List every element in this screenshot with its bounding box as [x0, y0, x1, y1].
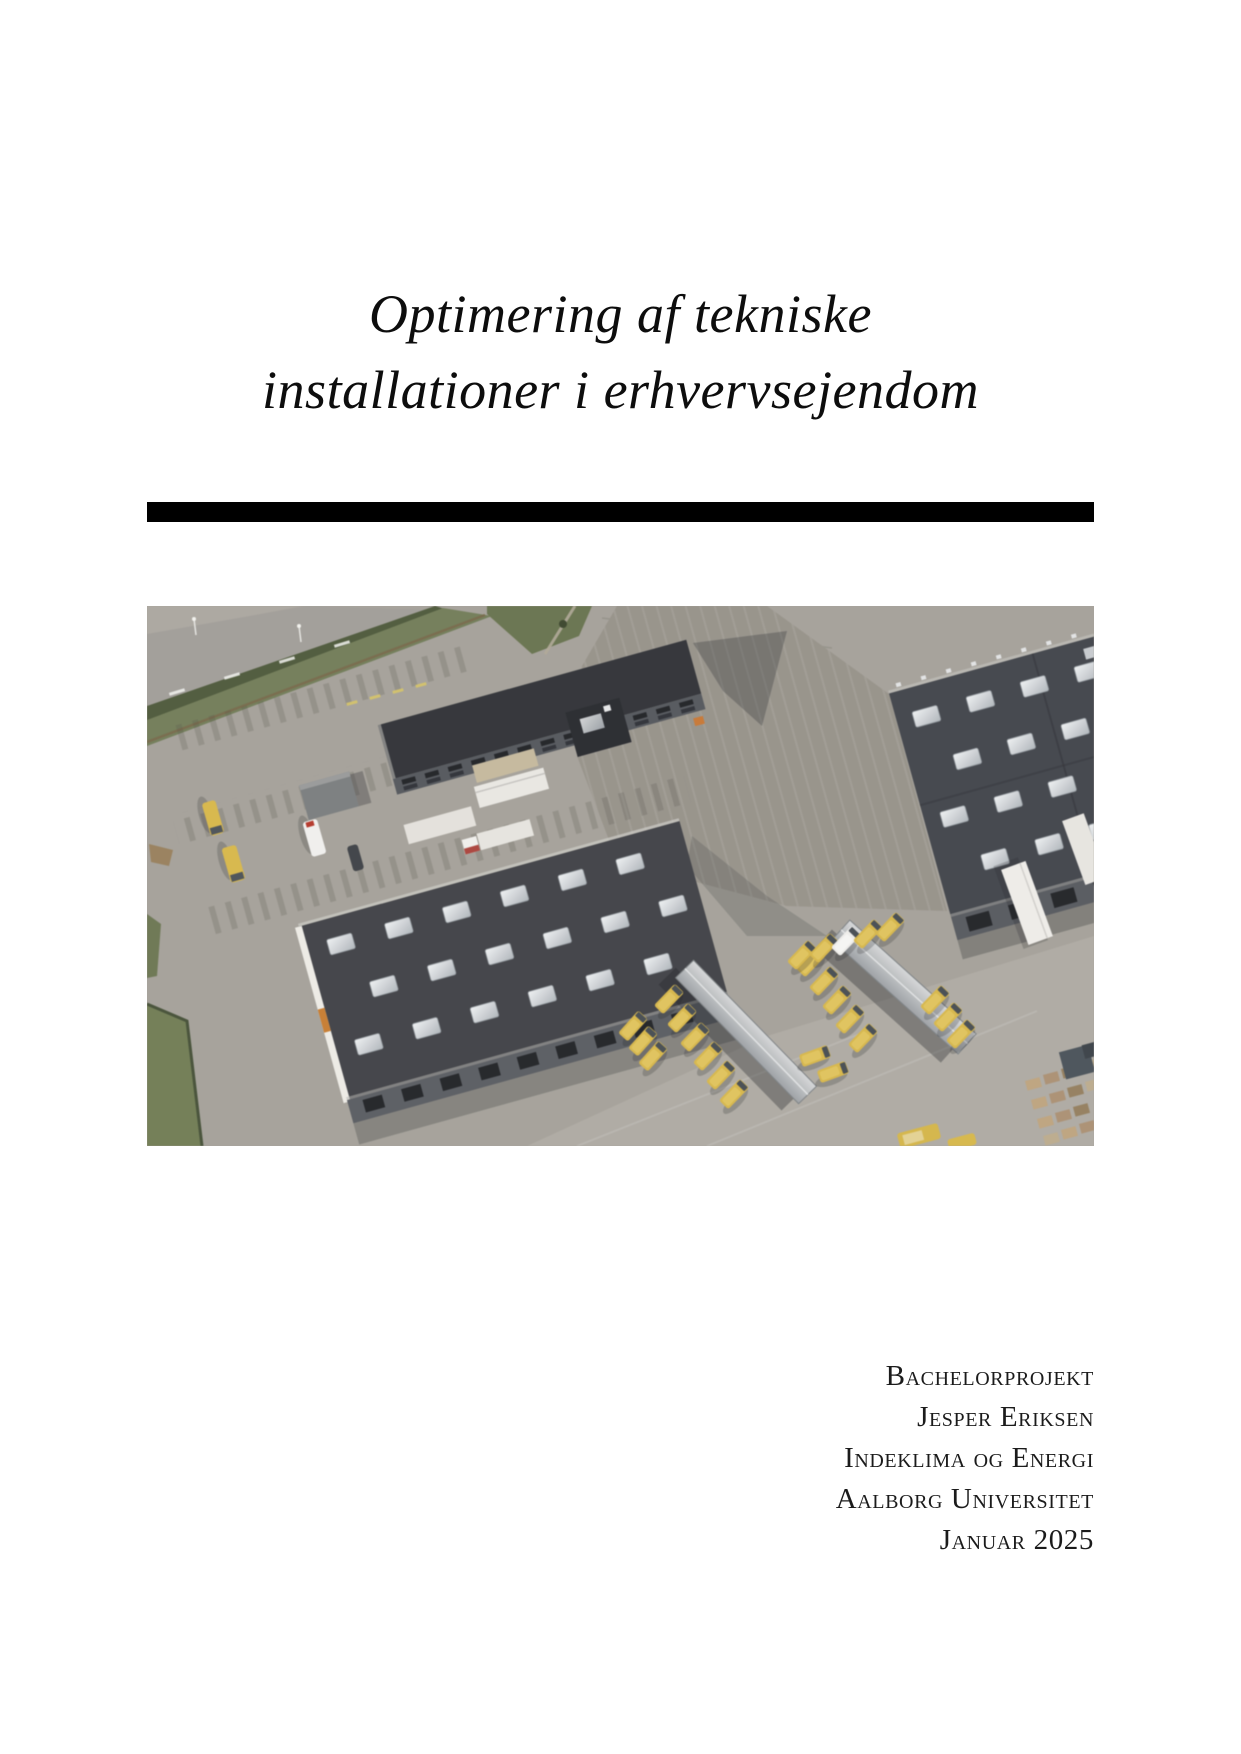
title-line-1: Optimering af tekniske: [369, 284, 872, 344]
cover-page: Optimering af tekniske installationer i …: [0, 0, 1241, 1754]
author-block: Bachelorprojekt Jesper Eriksen Indeklima…: [836, 1356, 1094, 1561]
footer-project-type: Bachelorprojekt: [836, 1356, 1094, 1397]
footer-university: Aalborg Universitet: [836, 1479, 1094, 1520]
cover-photo: [147, 606, 1094, 1146]
title-divider-bar: [147, 502, 1094, 522]
aerial-photo-graphic: [147, 606, 1094, 1146]
footer-author: Jesper Eriksen: [836, 1397, 1094, 1438]
footer-date: Januar 2025: [836, 1520, 1094, 1561]
footer-programme: Indeklima og Energi: [836, 1438, 1094, 1479]
title-line-2: installationer i erhvervsejendom: [262, 360, 979, 420]
report-title: Optimering af tekniske installationer i …: [147, 276, 1094, 428]
